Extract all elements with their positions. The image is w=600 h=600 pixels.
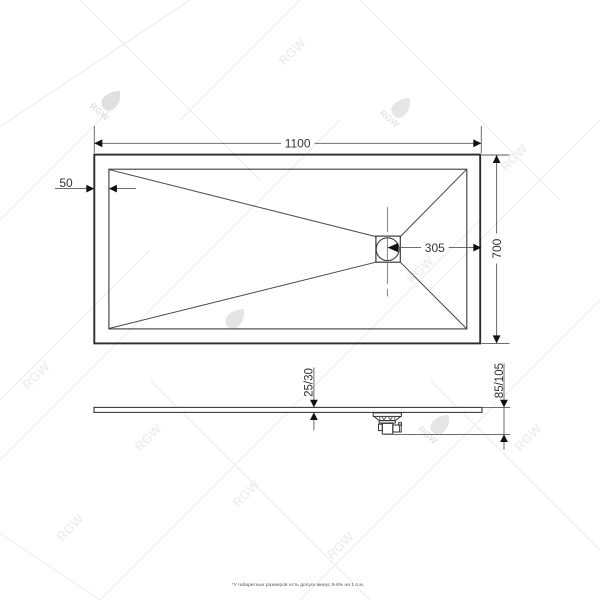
svg-text:25/30: 25/30 bbox=[304, 368, 316, 397]
svg-text:*У габаритных размеров есть до: *У габаритных размеров есть допуск минус… bbox=[232, 582, 364, 588]
svg-text:305: 305 bbox=[425, 241, 445, 255]
svg-text:85/105: 85/105 bbox=[494, 363, 506, 398]
svg-text:1100: 1100 bbox=[285, 137, 311, 151]
svg-text:50: 50 bbox=[59, 176, 73, 190]
svg-text:700: 700 bbox=[490, 238, 504, 258]
